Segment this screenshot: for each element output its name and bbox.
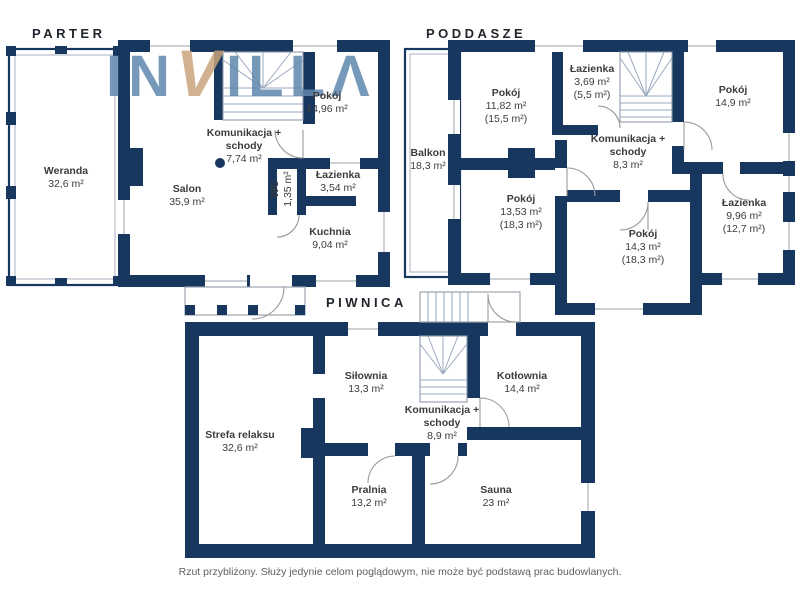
logo-text-in: IN	[106, 44, 176, 109]
room-area: 8,3 m²	[586, 158, 670, 171]
floor-title-poddasze: PODDASZE	[426, 26, 526, 41]
room-name: Siłownia	[345, 370, 388, 383]
room-label-lazienka-996: Łazienka 9,96 m² (12,7 m²)	[722, 197, 766, 235]
room-area: 11,82 m²	[485, 100, 528, 113]
room-label-lazienka-369: Łazienka 3,69 m² (5,5 m²)	[570, 63, 614, 101]
room-label-komunikacja-poddasze: Komunikacja + schody 8,3 m²	[586, 133, 670, 171]
room-name: Komunikacja + schody	[202, 127, 286, 153]
room-area-secondary: (12,7 m²)	[722, 222, 766, 235]
room-area: 1,35 m²	[282, 171, 295, 207]
disclaimer-text: Rzut przybliżony. Służy jedynie celom po…	[0, 566, 800, 578]
room-label-pokoj-143: Pokój 14,3 m² (18,3 m²)	[622, 228, 665, 266]
room-name: Sauna	[480, 484, 512, 497]
room-area-secondary: (18,3 m²)	[622, 253, 665, 266]
room-name: Łazienka	[570, 63, 614, 76]
room-label-kotlownia: Kotłownia 14,4 m²	[497, 370, 547, 396]
room-name: Kotłownia	[497, 370, 547, 383]
room-label-pokoj-149: Pokój 14,9 m²	[715, 84, 751, 110]
room-name: Pokój	[306, 90, 347, 103]
room-name: Łazienka	[316, 169, 360, 182]
room-area: 14,96 m²	[306, 103, 347, 116]
room-label-pokoj-1353: Pokój 13,53 m² (18,3 m²)	[500, 193, 543, 231]
room-name: Strefa relaksu	[205, 429, 274, 442]
room-area: 32,6 m²	[205, 442, 274, 455]
room-area: 18,3 m²	[410, 160, 446, 173]
room-label-kuchnia: Kuchnia 9,04 m²	[309, 226, 350, 252]
poddasze-stairs	[620, 52, 672, 122]
room-name: Salon	[169, 183, 205, 196]
room-label-salon: Salon 35,9 m²	[169, 183, 205, 209]
logo-v-checkmark: V	[176, 36, 226, 110]
room-area: 14,4 m²	[497, 383, 547, 396]
room-area: 9,04 m²	[309, 239, 350, 252]
room-name: Weranda	[44, 165, 88, 178]
room-area: 14,9 m²	[715, 97, 751, 110]
room-area-secondary: (18,3 m²)	[500, 218, 543, 231]
room-name: Pokój	[500, 193, 543, 206]
room-label-pralnia: Pralnia 13,2 m²	[351, 484, 387, 510]
room-label-komunikacja-parter: Komunikacja + schody 7,74 m²	[202, 127, 286, 165]
room-area-secondary: (15,5 m²)	[485, 112, 528, 125]
room-label-balkon: Balkon 18,3 m²	[410, 147, 446, 173]
room-area: 13,53 m²	[500, 206, 543, 219]
room-area: 13,3 m²	[345, 383, 388, 396]
room-area: 9,96 m²	[722, 210, 766, 223]
room-label-strefa-relaksu: Strefa relaksu 32,6 m²	[205, 429, 274, 455]
poddasze-windows	[448, 40, 795, 315]
room-label-sauna: Sauna 23 m²	[480, 484, 512, 510]
piwnica-exterior-stairs	[420, 292, 520, 322]
piwnica-floorplan	[185, 292, 595, 558]
room-area: 8,9 m²	[400, 429, 484, 442]
room-name: Pokój	[622, 228, 665, 241]
room-label-komunikacja-piwnica: Komunikacja + schody 8,9 m²	[400, 404, 484, 442]
room-label-lazienka-parter: Łazienka 3,54 m²	[316, 169, 360, 195]
floor-title-piwnica: PIWNICA	[326, 295, 407, 310]
room-label-pokoj-1182: Pokój 11,82 m² (15,5 m²)	[485, 87, 528, 125]
room-area-secondary: (5,5 m²)	[570, 88, 614, 101]
piwnica-stairs	[420, 336, 467, 402]
room-name: Pokój	[715, 84, 751, 97]
room-label-weranda: Weranda 32,6 m²	[44, 165, 88, 191]
room-area: 32,6 m²	[44, 178, 88, 191]
room-name: Komunikacja + schody	[586, 133, 670, 159]
room-area: 3,69 m²	[570, 76, 614, 89]
room-label-wc: WC 1,35 m²	[269, 171, 295, 207]
room-area: 14,3 m²	[622, 241, 665, 254]
room-area: 23 m²	[480, 497, 512, 510]
room-name: Łazienka	[722, 197, 766, 210]
room-area: 13,2 m²	[351, 497, 387, 510]
room-label-pokoj-parter: Pokój 14,96 m²	[306, 90, 347, 116]
room-name: Komunikacja + schody	[400, 404, 484, 430]
room-name: Balkon	[410, 147, 446, 160]
floor-title-parter: PARTER	[32, 26, 105, 41]
room-name: Pokój	[485, 87, 528, 100]
room-area: 3,54 m²	[316, 182, 360, 195]
parter-porch	[185, 287, 305, 315]
room-name: Pralnia	[351, 484, 387, 497]
room-name: Kuchnia	[309, 226, 350, 239]
room-area: 7,74 m²	[202, 152, 286, 165]
room-label-silownia: Siłownia 13,3 m²	[345, 370, 388, 396]
room-name: WC	[269, 171, 282, 207]
floorplan-canvas: INVILLΛ PARTER PODDASZE PIWNICA Weranda …	[0, 0, 800, 600]
room-area: 35,9 m²	[169, 196, 205, 209]
